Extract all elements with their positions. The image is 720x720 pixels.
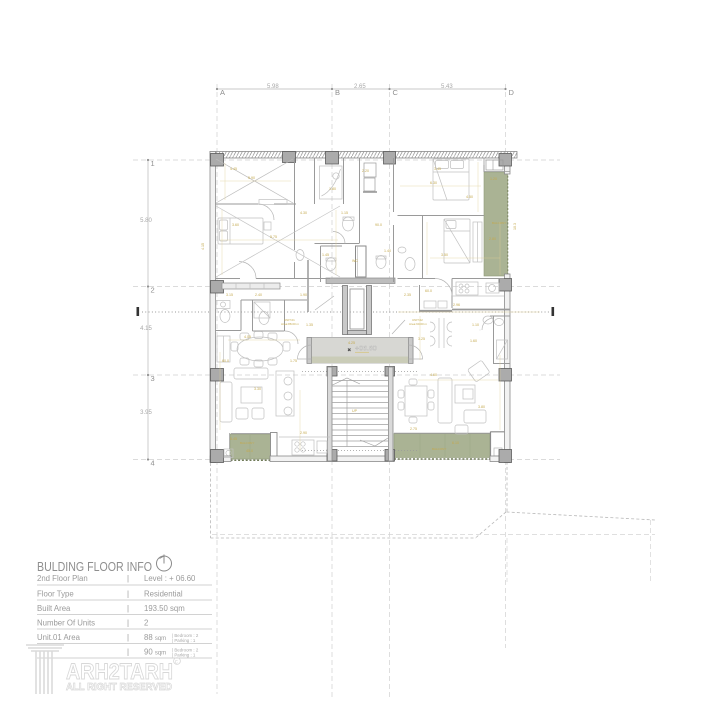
svg-text:4.60: 4.60 — [430, 373, 437, 377]
svg-text:1.60: 1.60 — [470, 339, 477, 343]
svg-text:Number Of Units: Number Of Units — [37, 619, 95, 628]
svg-text:c: c — [175, 659, 178, 665]
svg-text:60.0: 60.0 — [425, 289, 432, 293]
svg-text:BULDING FLOOR INFO: BULDING FLOOR INFO — [37, 560, 152, 574]
svg-text:2: 2 — [144, 619, 148, 628]
svg-text:1.80: 1.80 — [329, 187, 336, 191]
svg-text:2.35: 2.35 — [404, 293, 411, 297]
svg-text:2: 2 — [151, 286, 155, 295]
svg-text:1.45: 1.45 — [322, 253, 329, 257]
svg-text:2.80: 2.80 — [489, 237, 496, 241]
svg-text:4.50: 4.50 — [466, 195, 473, 199]
svg-text:BALCONY: BALCONY — [240, 441, 254, 445]
svg-text:1.10: 1.10 — [472, 323, 479, 327]
svg-text:1.35: 1.35 — [306, 323, 313, 327]
svg-text:Area:88.00 m: Area:88.00 m — [281, 322, 300, 326]
svg-text:5.45: 5.45 — [230, 437, 237, 441]
svg-text:3: 3 — [151, 374, 155, 383]
svg-text:193.50 sqm: 193.50 sqm — [144, 604, 185, 613]
svg-text:5.75: 5.75 — [270, 235, 277, 239]
svg-text:5.98: 5.98 — [267, 84, 279, 90]
svg-text:|: | — [127, 590, 129, 599]
svg-text:1: 1 — [151, 159, 155, 168]
svg-text:1.15: 1.15 — [341, 211, 348, 215]
svg-text:5.43: 5.43 — [441, 84, 453, 90]
svg-text:3.60: 3.60 — [232, 223, 239, 227]
svg-text:2nd Floor Plan: 2nd Floor Plan — [37, 574, 88, 583]
svg-text:1.20: 1.20 — [490, 177, 497, 181]
svg-text:2.96: 2.96 — [453, 303, 460, 307]
svg-text:4.05: 4.05 — [244, 335, 251, 339]
svg-text:4.25: 4.25 — [348, 341, 355, 345]
svg-text:+06.60: +06.60 — [355, 346, 377, 353]
svg-text:|: | — [127, 648, 129, 657]
svg-text:3.15: 3.15 — [226, 293, 233, 297]
svg-text:3.25: 3.25 — [418, 337, 425, 341]
svg-text:Residential: Residential — [144, 590, 183, 599]
svg-text:6.10: 6.10 — [452, 441, 459, 445]
svg-text:3.45: 3.45 — [434, 167, 441, 171]
svg-text:WC: WC — [352, 259, 358, 263]
svg-text:| Parking : 1: | Parking : 1 — [172, 638, 196, 643]
svg-text:ALL RIGHT RESERVED: ALL RIGHT RESERVED — [66, 681, 172, 693]
svg-text:C: C — [393, 88, 399, 97]
svg-text:10.3: 10.3 — [513, 223, 517, 230]
svg-text:|: | — [127, 619, 129, 628]
svg-text:45.0: 45.0 — [246, 449, 253, 453]
svg-text:D: D — [509, 88, 515, 97]
svg-text:2.40: 2.40 — [255, 293, 262, 297]
svg-text:BALCONY: BALCONY — [432, 447, 446, 451]
svg-text:4.15: 4.15 — [201, 243, 205, 250]
svg-text:6.30: 6.30 — [430, 181, 437, 185]
svg-text:Area:90.00 m: Area:90.00 m — [409, 322, 428, 326]
svg-text:3.50: 3.50 — [441, 253, 448, 257]
svg-text:4.45: 4.45 — [230, 167, 237, 171]
svg-text:1.40: 1.40 — [384, 249, 391, 253]
svg-text:4.15: 4.15 — [140, 326, 152, 332]
svg-text:2.65: 2.65 — [354, 84, 366, 90]
svg-text:BALCONY: BALCONY — [492, 221, 506, 225]
svg-text:4: 4 — [151, 459, 155, 468]
svg-text:2.20: 2.20 — [362, 169, 369, 173]
svg-text:1.90: 1.90 — [300, 293, 307, 297]
svg-text:60.0: 60.0 — [222, 359, 229, 363]
svg-text:5.90: 5.90 — [248, 176, 255, 180]
svg-text:4.30: 4.30 — [300, 211, 307, 215]
svg-text:Floor Type: Floor Type — [37, 590, 74, 599]
svg-text:1.75: 1.75 — [290, 359, 297, 363]
svg-text:UP: UP — [352, 409, 358, 413]
svg-text:Level : + 06.60: Level : + 06.60 — [144, 574, 196, 583]
svg-text:A: A — [220, 88, 225, 97]
svg-text:3.30: 3.30 — [254, 387, 261, 391]
svg-text:|: | — [127, 604, 129, 613]
svg-text:|: | — [127, 574, 129, 583]
svg-text:2.90: 2.90 — [300, 431, 307, 435]
svg-text:3.80: 3.80 — [478, 405, 485, 409]
svg-text:Built Area: Built Area — [37, 604, 71, 613]
svg-text:|: | — [127, 633, 129, 642]
svg-text:B: B — [335, 88, 340, 97]
svg-text:2.75: 2.75 — [410, 427, 417, 431]
svg-text:| Parking : 1: | Parking : 1 — [172, 653, 196, 658]
svg-text:3.95: 3.95 — [140, 410, 152, 416]
svg-text:5.80: 5.80 — [140, 218, 152, 224]
svg-text:Unit.01 Area: Unit.01 Area — [37, 633, 81, 642]
svg-text:90.0: 90.0 — [375, 223, 382, 227]
